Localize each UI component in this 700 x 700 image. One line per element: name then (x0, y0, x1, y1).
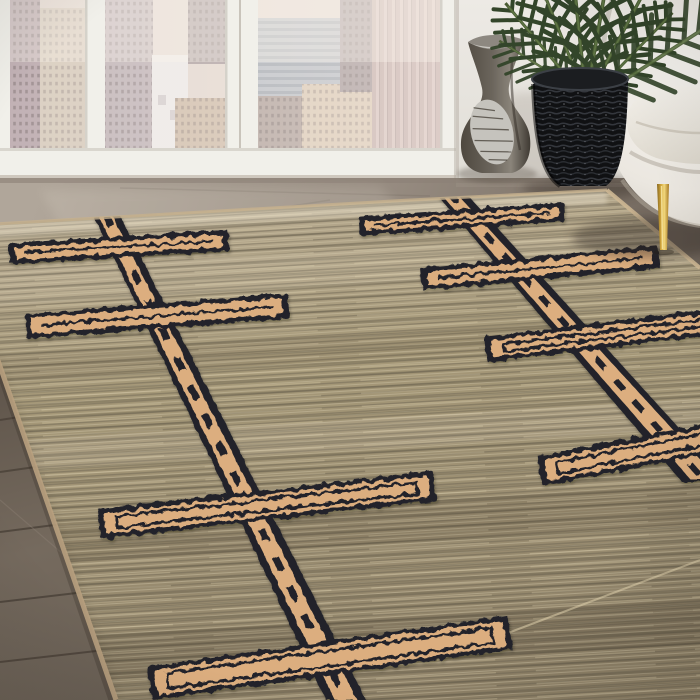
scene-canvas (0, 0, 700, 700)
rug-product-photo (0, 0, 700, 700)
vignette (0, 0, 700, 700)
